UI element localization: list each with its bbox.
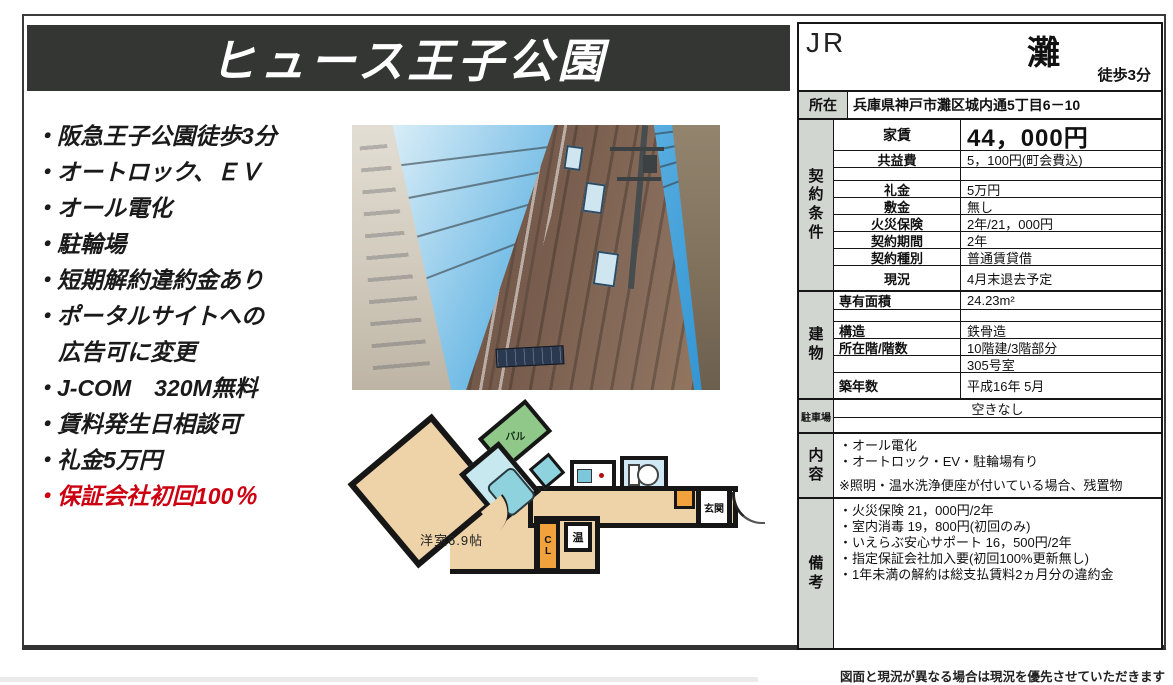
scan-artifact xyxy=(0,677,758,682)
pole-crossarm xyxy=(617,177,661,181)
location-row: 所在 兵庫県神戸市灘区城内通5丁目6－10 xyxy=(799,90,1161,118)
table-row: 築年数 平成16年 5月 xyxy=(834,372,1161,398)
table-row: 現況 4月末退去予定 xyxy=(834,265,1161,290)
feature-item: ・駐輪場 xyxy=(34,226,354,262)
feature-item: ・阪急王子公園徒歩3分 xyxy=(34,118,354,154)
table-row xyxy=(834,417,1161,432)
kitchen-sink-icon xyxy=(577,469,592,483)
remarks-section-label: 備考 xyxy=(799,499,834,648)
table-row xyxy=(834,309,1161,321)
building-section: 建物 専有面積 24.23m² 構造 鉄骨造 所在階/階数 10階建/3階部分 xyxy=(799,290,1161,398)
feature-item: ・ポータルサイトへの xyxy=(34,298,354,334)
parking-value: 空きなし xyxy=(834,400,1161,417)
closet-label: CL xyxy=(543,535,553,557)
property-table: JR 灘 徒歩3分 所在 兵庫県神戸市灘区城内通5丁目6－10 契約条件 家賃 … xyxy=(797,22,1163,650)
building-nameplate xyxy=(495,345,564,368)
remarks-line: ・いえらぶ安心サポート 16，500円/2年 xyxy=(839,535,1156,551)
contract-section-label: 契約条件 xyxy=(799,120,834,290)
contents-body: ・オール電化 ・オートロック・EV・駐輪場有り ※照明・温水洗浄便座が付いている… xyxy=(834,434,1161,497)
kitchen-burner-icon xyxy=(599,473,604,478)
feature-item-highlighted: ・保証会社初回100％ xyxy=(34,478,354,514)
station-name: 灘 xyxy=(1027,26,1060,74)
balcony-label: バル xyxy=(505,428,525,443)
remarks-line: ・室内消毒 19，800円(初回のみ) xyxy=(839,519,1156,535)
table-row: 契約期間 2年 xyxy=(834,231,1161,248)
contract-section: 契約条件 家賃 44，000円 共益費 5，100円(町会費込) 礼金 5万円 xyxy=(799,118,1161,290)
parking-section-label: 駐車場 xyxy=(799,400,834,432)
table-row: 空きなし xyxy=(834,400,1161,417)
floorplan-washer-space xyxy=(674,488,695,509)
remarks-section: 備考 ・火災保険 21，000円/2年 ・室内消毒 19，800円(初回のみ) … xyxy=(799,497,1161,648)
table-row: 所在階/階数 10階建/3階部分 xyxy=(834,338,1161,355)
feature-item: ・オール電化 xyxy=(34,190,354,226)
contents-line xyxy=(839,470,1156,478)
location-label: 所在 xyxy=(799,92,848,118)
table-row: 家賃 44，000円 xyxy=(834,120,1161,150)
remarks-line: ・指定保証会社加入要(初回100%更新無し) xyxy=(839,551,1156,567)
table-row: 305号室 xyxy=(834,355,1161,372)
floorplan-water-heater: 温 xyxy=(564,522,592,552)
table-row: 火災保険 2年/21，000円 xyxy=(834,214,1161,231)
feature-item: ・オートロック、ＥＶ xyxy=(34,154,354,190)
contents-section: 内容 ・オール電化 ・オートロック・EV・駐輪場有り ※照明・温水洗浄便座が付い… xyxy=(799,432,1161,497)
remarks-line: ・1年未満の解約は総支払賃料2ヵ月分の違約金 xyxy=(839,567,1156,583)
contents-line: ・オール電化 xyxy=(839,438,1156,454)
remarks-body: ・火災保険 21，000円/2年 ・室内消毒 19，800円(初回のみ) ・いえ… xyxy=(834,499,1161,648)
contract-rows: 家賃 44，000円 共益費 5，100円(町会費込) 礼金 5万円 敷金 xyxy=(834,120,1161,290)
table-row: 共益費 5，100円(町会費込) xyxy=(834,150,1161,167)
remarks-line: ・火災保険 21，000円/2年 xyxy=(839,503,1156,519)
floor-plan: バル 玄関 CL 温 洋室6.9帖 xyxy=(358,408,773,598)
table-row: 構造 鉄骨造 xyxy=(834,321,1161,338)
building-section-label: 建物 xyxy=(799,292,834,398)
feature-item: ・礼金5万円 xyxy=(34,442,354,478)
table-row xyxy=(834,167,1161,180)
feature-item-continuation: 広告可に変更 xyxy=(34,334,354,370)
power-line xyxy=(352,125,720,179)
walk-time: 徒歩3分 xyxy=(1098,64,1151,85)
property-title: ヒュース王子公園 xyxy=(210,25,608,91)
rent-value: 44，000円 xyxy=(961,120,1161,150)
building-window xyxy=(593,251,620,288)
floorplan-closet: CL xyxy=(536,520,560,572)
floorplan-entrance: 玄関 xyxy=(696,486,732,528)
table-row: 契約種別 普通賃貸借 xyxy=(834,248,1161,265)
location-value: 兵庫県神戸市灘区城内通5丁目6－10 xyxy=(848,92,1161,118)
toilet-bowl-icon xyxy=(637,464,659,486)
feature-item: ・短期解約違約金あり xyxy=(34,262,354,298)
feature-item: ・J-COM 320M無料 xyxy=(34,370,354,406)
station-header: JR 灘 徒歩3分 xyxy=(799,24,1161,90)
floorplan-toilet-room xyxy=(620,456,668,490)
feature-list: ・阪急王子公園徒歩3分 ・オートロック、ＥＶ ・オール電化 ・駐輪場 ・短期解約… xyxy=(34,118,354,514)
table-row: 敷金 無し xyxy=(834,197,1161,214)
parking-rows: 空きなし xyxy=(834,400,1161,432)
entrance-label: 玄関 xyxy=(704,500,724,515)
table-row: 専有面積 24.23m² xyxy=(834,292,1161,309)
title-banner: ヒュース王子公園 xyxy=(27,25,790,91)
building-window xyxy=(582,182,606,214)
floorplan-kitchen xyxy=(570,460,616,490)
pole-transformer xyxy=(643,155,657,173)
rail-line: JR xyxy=(806,27,846,59)
pole-crossarm xyxy=(610,147,664,151)
building-rows: 専有面積 24.23m² 構造 鉄骨造 所在階/階数 10階建/3階部分 xyxy=(834,292,1161,398)
disclaimer-text: 図面と現況が異なる場合は現況を優先させていただきます xyxy=(840,666,1165,685)
parking-section: 駐車場 空きなし xyxy=(799,398,1161,432)
contents-line: ※照明・温水洗浄便座が付いている場合、残置物 xyxy=(839,478,1156,494)
table-row: 礼金 5万円 xyxy=(834,180,1161,197)
contents-section-label: 内容 xyxy=(799,434,834,497)
water-heater-label: 温 xyxy=(573,529,584,545)
building-photo xyxy=(352,125,720,390)
room-size-label: 洋室6.9帖 xyxy=(420,530,483,549)
contents-line: ・オートロック・EV・駐輪場有り xyxy=(839,454,1156,470)
feature-item: ・賃料発生日相談可 xyxy=(34,406,354,442)
